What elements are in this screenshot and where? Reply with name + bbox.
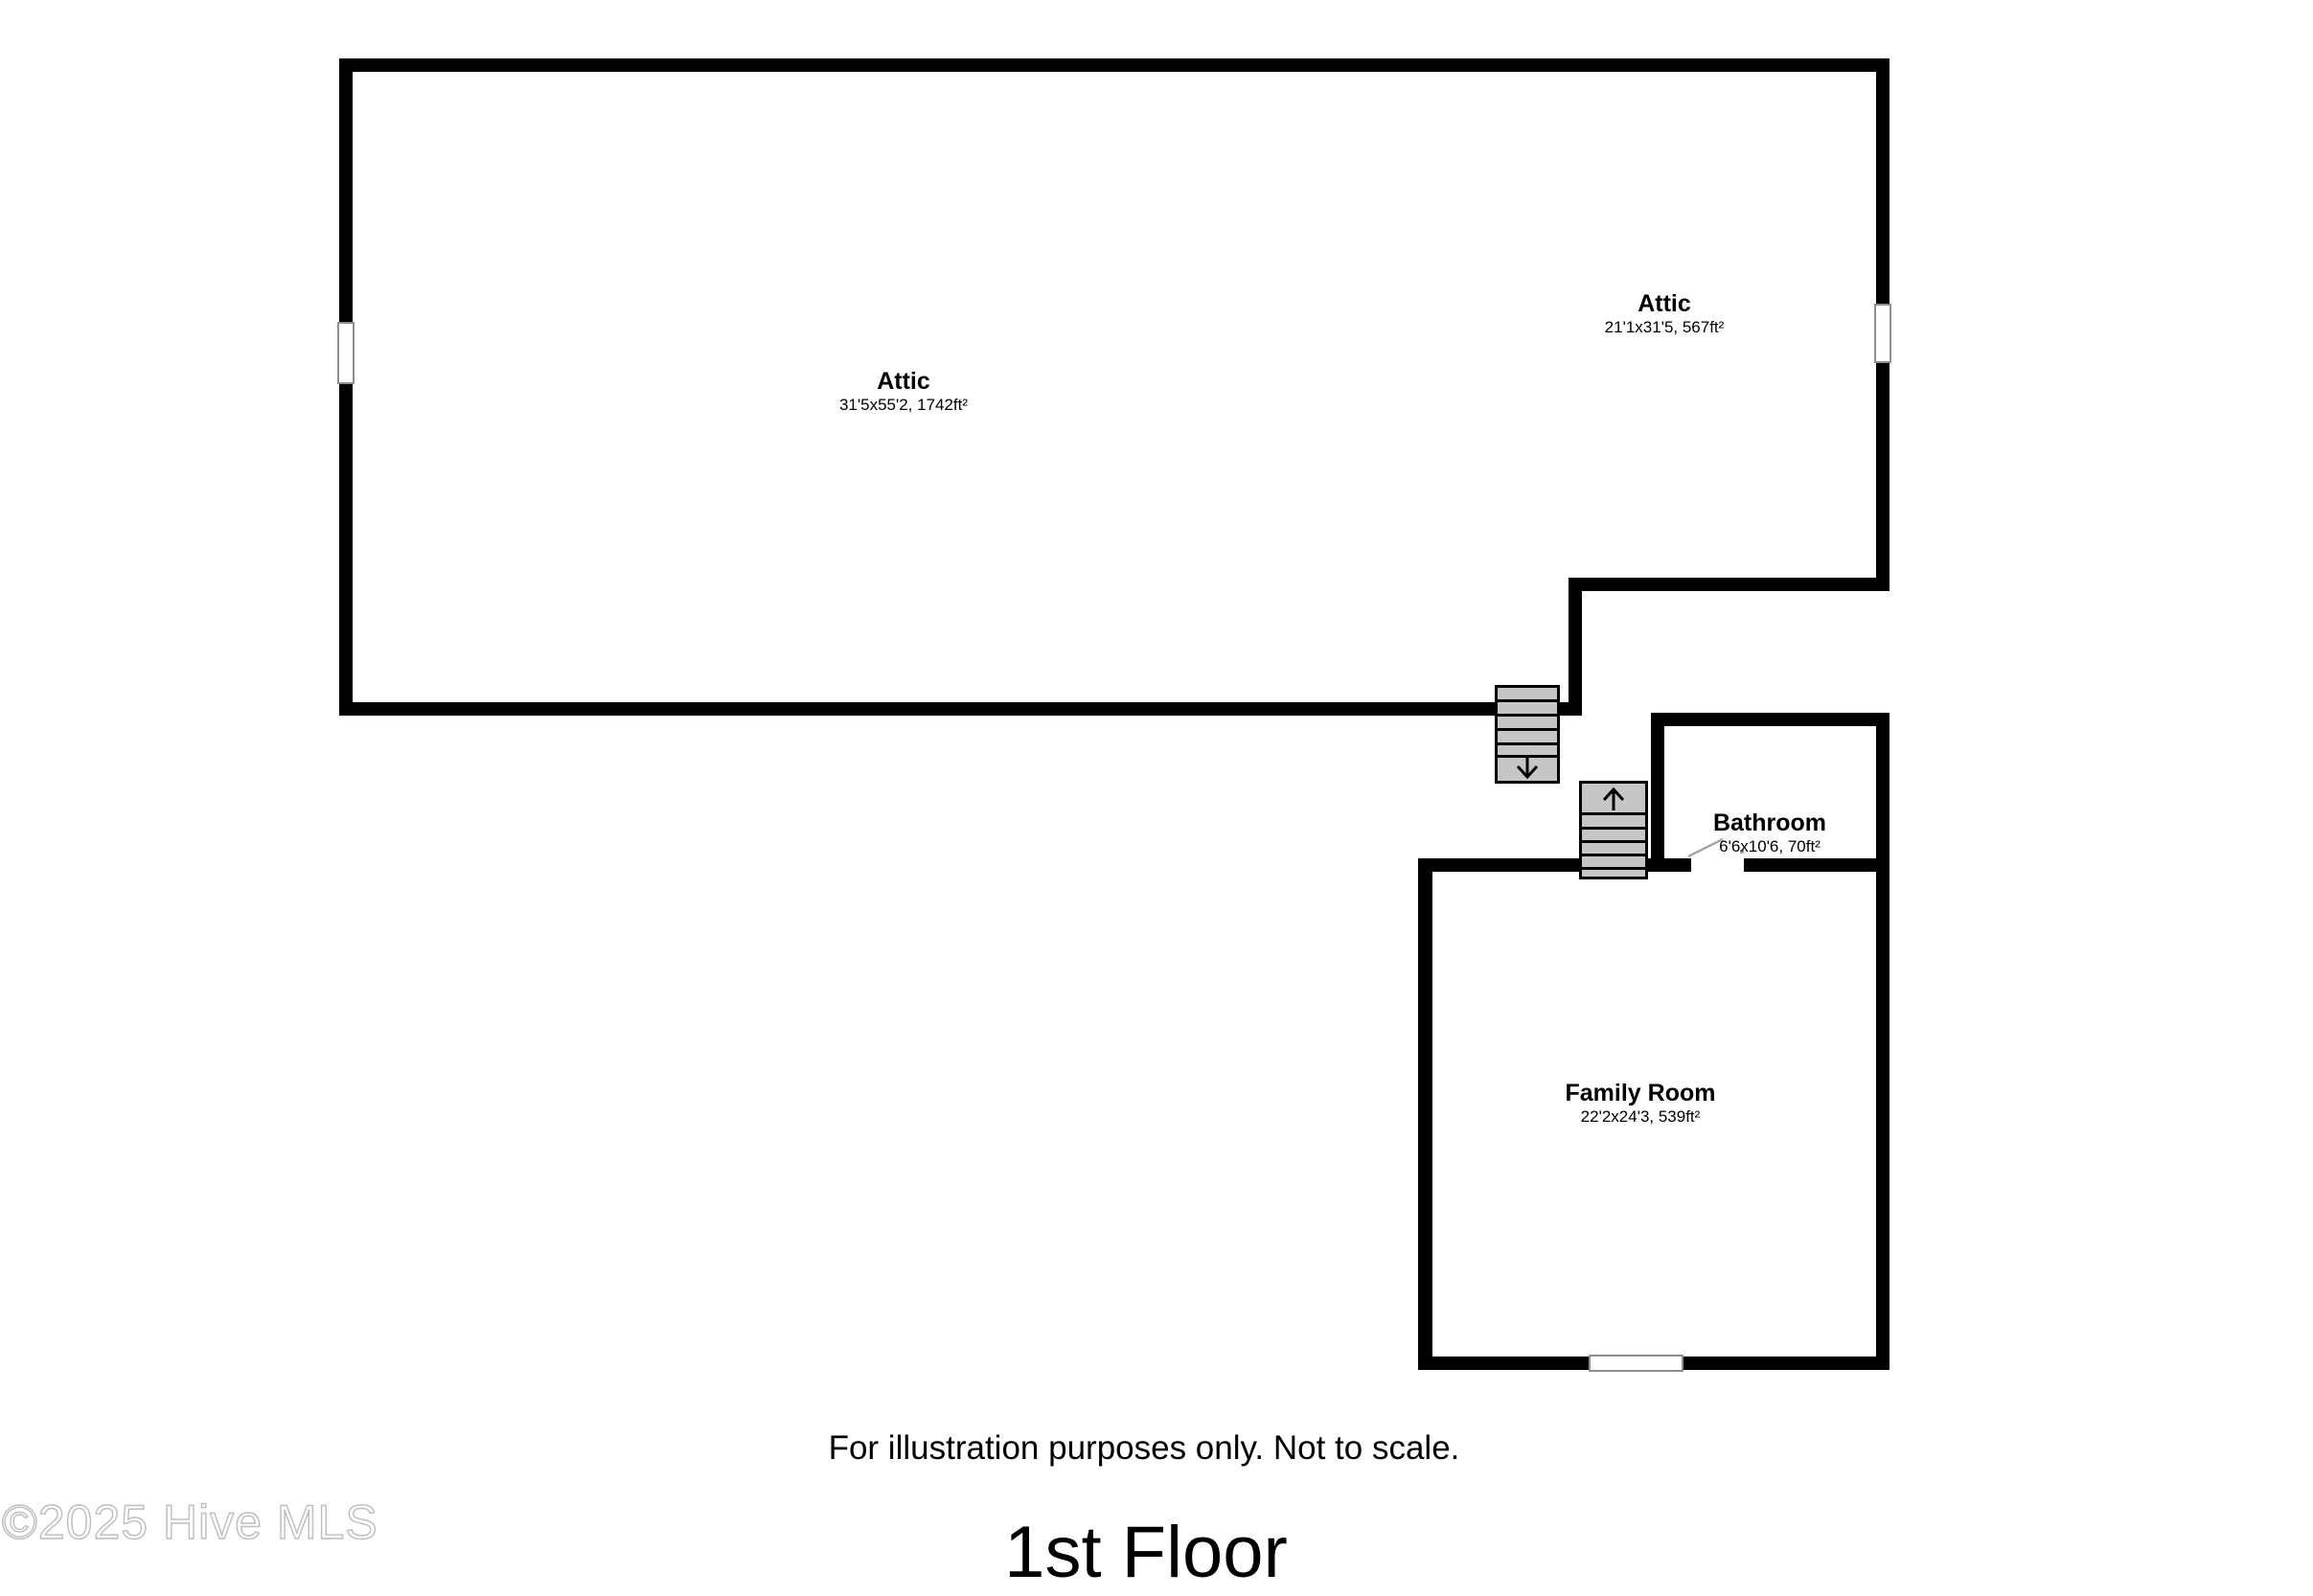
room-dimensions: 31'5x55'2, 1742ft² [839,395,968,416]
attic-bottom-wall-right [1569,578,1889,591]
attic-left-window [337,322,355,384]
room-dimensions: 22'2x24'3, 539ft² [1566,1106,1716,1128]
room-name: Bathroom [1713,809,1826,836]
attic-left-wall [339,58,353,716]
attic-bottom-wall-left [339,702,1581,716]
attic-main-label: Attic 31'5x55'2, 1742ft² [839,368,968,416]
floor-plan: Attic 31'5x55'2, 1742ft² Attic 21'1x31'5… [0,0,2313,1596]
mls-watermark: ©2025 Hive MLS [2,1497,378,1547]
down-arrow-icon [1498,755,1557,781]
staircase-up [1579,781,1648,879]
room-name: Attic [1605,290,1725,317]
family-room-bottom-opening [1589,1355,1683,1372]
up-arrow-icon [1582,786,1645,812]
room-name: Family Room [1566,1080,1716,1106]
middle-wall-west-segment [1418,858,1691,872]
stair-tread [1498,714,1557,717]
attic-right-window [1874,304,1891,363]
attic-top-wall [339,58,1889,72]
middle-wall-east-segment [1744,858,1889,872]
floor-title: 1st Floor [1004,1515,1288,1591]
stair-tread [1582,840,1645,843]
east-right-wall [1876,713,1889,1370]
stair-tread [1582,827,1645,830]
bathroom-label: Bathroom 6'6x10'6, 70ft² [1713,809,1826,857]
family-room-label: Family Room 22'2x24'3, 539ft² [1566,1080,1716,1128]
disclaimer-text: For illustration purposes only. Not to s… [829,1429,1460,1468]
stair-tread [1498,742,1557,745]
bathroom-top-wall [1651,713,1889,726]
stair-tread [1582,867,1645,870]
staircase-down [1495,685,1560,784]
stair-tread [1498,699,1557,702]
attic-small-label: Attic 21'1x31'5, 567ft² [1605,290,1725,338]
stair-tread [1498,728,1557,731]
room-name: Attic [839,368,968,395]
room-dimensions: 21'1x31'5, 567ft² [1605,317,1725,338]
stair-tread [1582,854,1645,856]
bathroom-left-wall [1651,713,1664,872]
stair-tread [1582,812,1645,815]
attic-notch-wall [1569,578,1582,716]
room-dimensions: 6'6x10'6, 70ft² [1713,836,1826,857]
family-room-left-wall [1418,858,1432,1370]
